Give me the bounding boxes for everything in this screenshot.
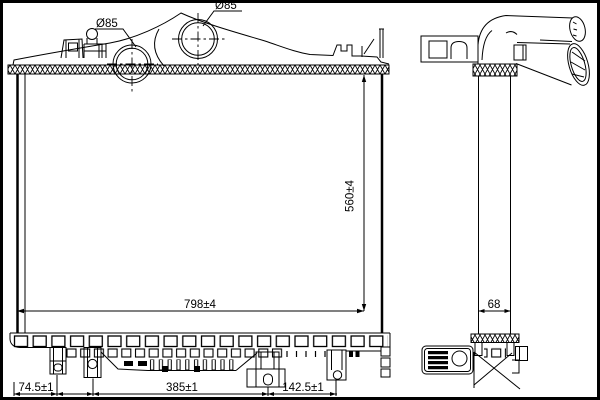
port-diameter-label-1: Ø85	[96, 18, 118, 30]
dimension-feet-middle-label: 385±1	[166, 382, 198, 394]
side-top-bracket-hole	[429, 41, 447, 58]
mount-foot-2-hole	[88, 359, 97, 368]
bottom-tank-window-row	[13, 335, 388, 349]
side-elbow-inner-lines	[482, 31, 517, 61]
side-elbow	[478, 16, 573, 65]
port-diameter-label-2: Ø85	[215, 0, 237, 12]
upper-pipe-opening	[567, 15, 588, 43]
bottom-tank	[10, 333, 390, 387]
dimension-width: 798±4	[17, 299, 364, 313]
mount-foot-4-hole	[333, 371, 341, 379]
side-gasket-band	[473, 64, 517, 76]
top-bracket-left-b-ring	[87, 29, 98, 40]
dimension-height-label: 560±4	[345, 179, 357, 211]
side-tank-bricks	[484, 347, 506, 358]
top-gasket-band	[8, 65, 389, 74]
dimension-feet: 74.5±1 385±1 142.5±1	[14, 375, 337, 396]
lower-pipe	[516, 41, 594, 88]
dimension-feet-right-label: 142.5±1	[282, 382, 324, 394]
dimension-depth: 68	[479, 299, 511, 313]
outlet-port	[172, 13, 225, 66]
side-top-bracket	[421, 36, 478, 62]
intercooler-drawing: Ø85 Ø85 560±4 798±4	[0, 0, 600, 400]
side-grille-bars	[428, 351, 448, 369]
mount-foot-1	[50, 348, 66, 375]
side-grille-bracket	[422, 346, 473, 374]
dimension-height: 560±4	[345, 75, 367, 311]
side-view: 68	[421, 15, 594, 389]
mount-foot-1-slot	[54, 364, 62, 371]
top-bracket-left-b	[84, 29, 106, 59]
side-elbow-stub	[514, 45, 526, 60]
side-top-bracket-arch	[451, 42, 467, 60]
bottom-tank-right-steps	[381, 347, 390, 377]
lower-pipe-opening	[563, 41, 593, 88]
upper-pipe	[540, 15, 588, 43]
top-bracket-right-clip	[362, 29, 384, 58]
technical-drawing-page: Ø85 Ø85 560±4 798±4	[0, 0, 600, 400]
bottom-tank-tick-row	[283, 351, 327, 358]
mount-foot-3-slot	[264, 374, 273, 385]
front-view: Ø85 Ø85 560±4 798±4	[8, 0, 390, 396]
dimension-depth-label: 68	[488, 299, 501, 311]
top-tank-inner-line	[155, 29, 164, 66]
top-tank-outline	[13, 13, 389, 65]
side-bottom-flange	[471, 334, 519, 343]
dimension-feet-left-label: 74.5±1	[18, 382, 53, 394]
lower-pipe-ribs	[571, 52, 585, 77]
side-grille-circle	[452, 351, 467, 366]
bottom-tank-teeth	[148, 360, 236, 372]
dimension-width-label: 798±4	[184, 299, 216, 311]
side-bottom-tank	[422, 334, 528, 389]
side-outlet-stub	[516, 347, 528, 361]
upper-pipe-ticks	[573, 22, 577, 36]
mount-foot-4	[327, 350, 346, 380]
